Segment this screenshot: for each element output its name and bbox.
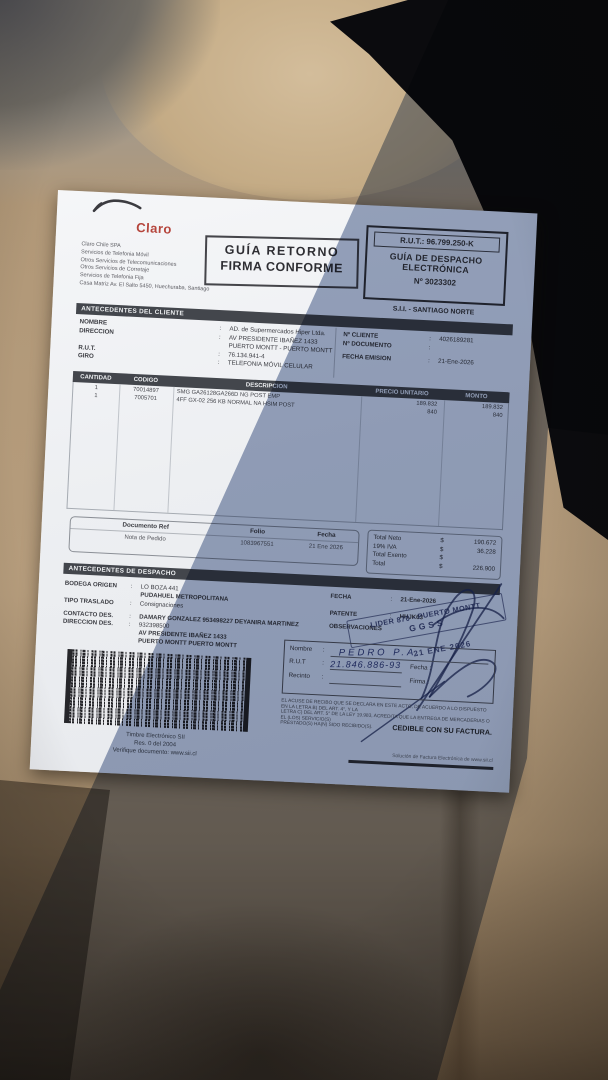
table-column-line <box>438 400 445 526</box>
document-number: Nº 3023302 <box>366 274 504 290</box>
timbre-electronico-caption: Timbre Electrónico SII Res. 0 del 2004 V… <box>63 728 248 761</box>
dispatch-bodega-origen: BODEGA ORIGEN:LO BOZA 441 <box>65 580 179 593</box>
table-column-line <box>113 384 120 510</box>
reference-doc-box: Documento Ref Folio Fecha Nota de Pedido… <box>68 516 359 566</box>
claro-logo: Claro <box>136 220 172 237</box>
pdf417-barcode <box>64 649 251 732</box>
stamp-line: GUÍA RETORNO <box>207 242 357 259</box>
handwritten-rut: 21.846.886-93 <box>330 659 401 670</box>
items-table-body: 1 70014897 SMG GA26128GA266D NG POST EMP… <box>66 382 509 530</box>
car-pillar-shadow <box>0 0 220 170</box>
client-column-divider <box>333 328 336 378</box>
table-column-line <box>355 396 362 522</box>
rut-label: R.U.T <box>289 658 306 666</box>
guia-retorno-stamp: GUÍA RETORNO FIRMA CONFORME <box>204 235 359 288</box>
guia-despacho-document: Claro Claro Chile SPA Servicios de Telef… <box>30 190 538 793</box>
handwritten-name: PEDRO P.A. <box>339 647 422 658</box>
pen-check-mark-icon <box>91 196 144 219</box>
issuer-rut: R.U.T.: 96.799.250-K <box>374 232 501 253</box>
recinto-label: Recinto <box>288 672 310 680</box>
column-header-cantidad: CANTIDAD <box>73 373 119 381</box>
table-column-line <box>167 387 174 513</box>
rut-header-box: R.U.T.: 96.799.250-K GUÍA DE DESPACHO EL… <box>363 225 508 306</box>
nombre-label: Nombre <box>290 645 313 653</box>
receiver-signature-box: Nombre : PEDRO P.A. 21 ENE 2026 R.U.T : … <box>282 640 496 704</box>
column-header-codigo: CODIGO <box>119 376 173 385</box>
photo: Claro Claro Chile SPA Servicios de Telef… <box>0 0 608 1080</box>
recinto-line <box>329 683 401 688</box>
stamp-line: FIRMA CONFORME <box>206 258 356 275</box>
column-header-monto: MONTO <box>443 392 509 401</box>
seat-bottom-shadow <box>60 900 460 1080</box>
fecha-label: Fecha : <box>410 664 431 672</box>
client-field-fecha-emision: FECHA EMISION:21-Ene-2026 <box>342 353 474 366</box>
firma-label: Firma : <box>409 678 429 686</box>
sii-office: S.I.I. - SANTIAGO NORTE <box>362 304 504 318</box>
